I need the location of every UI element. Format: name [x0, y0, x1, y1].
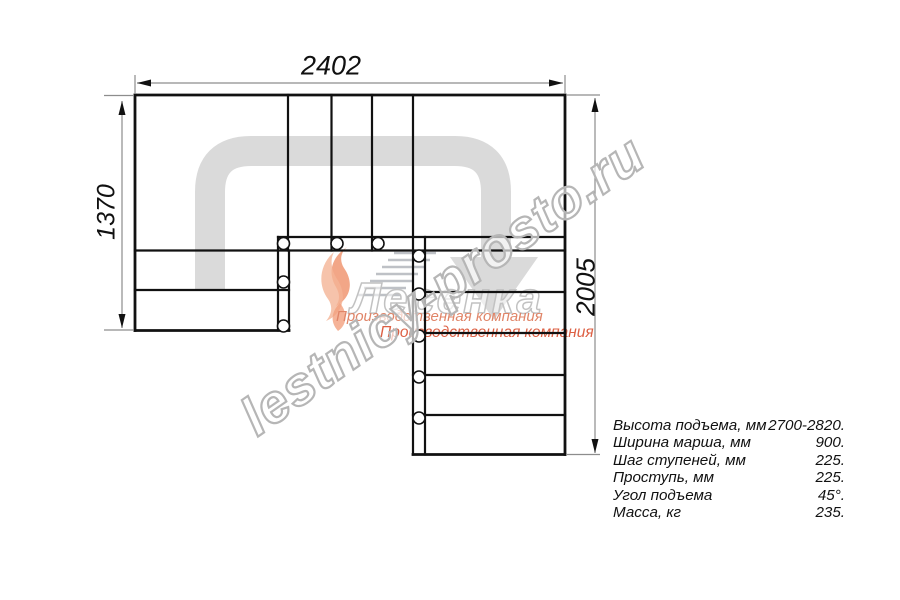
spec-label: Высота подъема, мм: [613, 417, 767, 434]
spec-row-mass: Масса, кг 235.: [613, 504, 845, 521]
spec-label: Угол подъема: [613, 487, 712, 504]
dimension-top-width: 2402: [301, 51, 361, 82]
spec-value: 45°.: [818, 487, 845, 504]
spec-value: 235.: [815, 504, 845, 521]
spec-value: 900.: [815, 434, 845, 451]
stair-plan-canvas: Лесенка Производственная компания Произв…: [0, 0, 900, 600]
dimension-right-height: 2005: [571, 258, 602, 316]
spec-label: Масса, кг: [613, 504, 681, 521]
spec-row-angle: Угол подъема 45°.: [613, 487, 845, 504]
spec-label: Шаг ступеней, мм: [613, 452, 746, 469]
spec-label: Проступь, мм: [613, 469, 714, 486]
spec-row-tread: Проступь, мм 225.: [613, 469, 845, 486]
spec-value: 2700-2820.: [768, 417, 845, 434]
spec-value: 225.: [815, 469, 845, 486]
spec-row-step-pitch: Шаг ступеней, мм 225.: [613, 452, 845, 469]
spec-label: Ширина марша, мм: [613, 434, 751, 451]
spec-value: 225.: [815, 452, 845, 469]
spec-row-height: Высота подъема, мм 2700-2820.: [613, 417, 845, 434]
dimension-left-height: 1370: [93, 184, 122, 240]
spec-table: Высота подъема, мм 2700-2820. Ширина мар…: [613, 417, 845, 521]
spec-row-flight-width: Ширина марша, мм 900.: [613, 434, 845, 451]
